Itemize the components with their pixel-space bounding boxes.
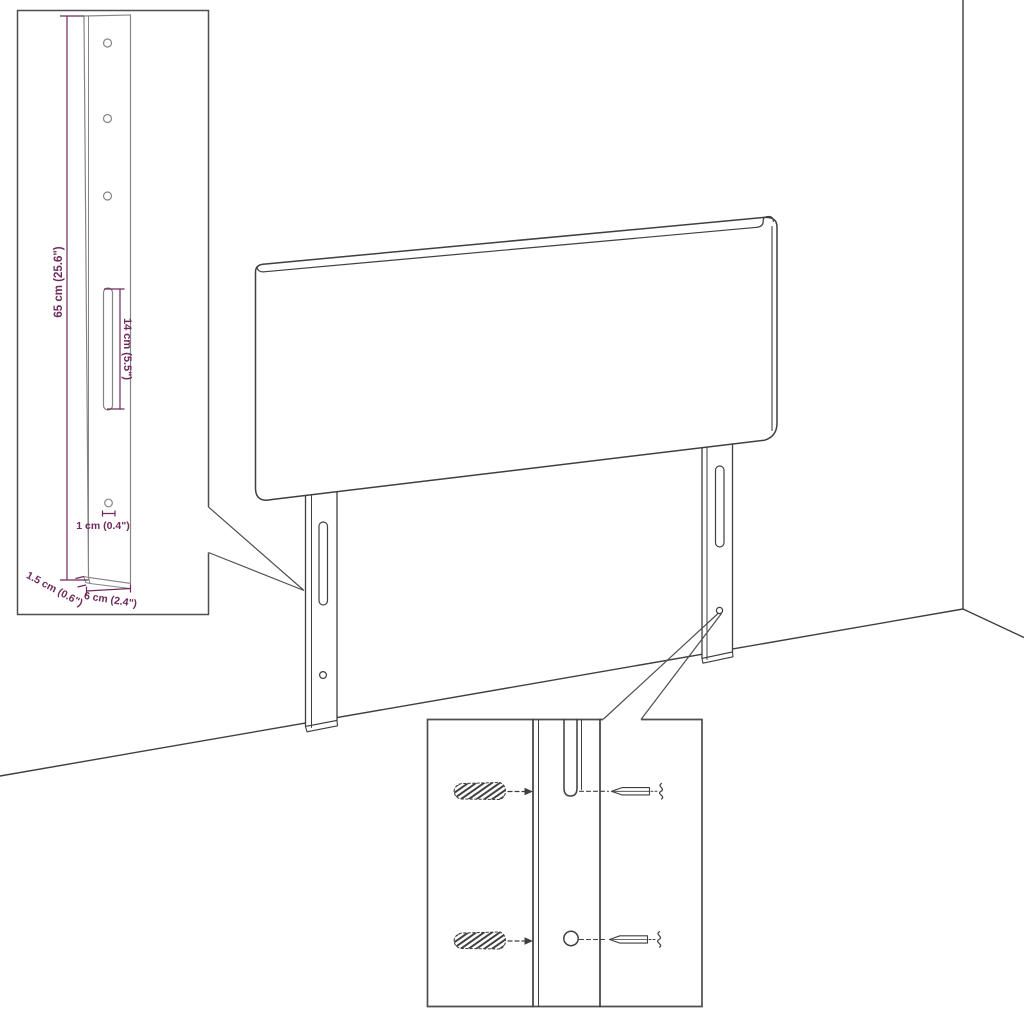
height-dimension-label: 65 cm (25.6") — [53, 246, 65, 317]
headboard-right-leg — [702, 417, 733, 663]
panel-face — [256, 217, 778, 500]
hole-dimension-label: 1 cm (0.4") — [76, 520, 129, 532]
wall-anchor-icon — [454, 783, 506, 800]
headboard-left-leg — [306, 467, 338, 732]
diagram-canvas: 65 cm (25.6") 14 cm (5.5") 1 cm (0.4") 1… — [0, 0, 1024, 1024]
bracket-callout-lines — [209, 507, 305, 591]
bracket-face — [84, 15, 131, 584]
headboard-panel — [256, 217, 778, 501]
hardware-detail-inset — [428, 614, 722, 1007]
floor-line-right — [963, 609, 1024, 638]
left-leg-body — [306, 467, 338, 727]
bracket-drawing — [84, 15, 131, 589]
wall-anchor-icon — [454, 932, 506, 949]
slot-dimension-label: 14 cm (5.5") — [121, 318, 133, 380]
strip-hole-detail — [564, 931, 578, 945]
product-dimension-diagram: 65 cm (25.6") 14 cm (5.5") 1 cm (0.4") 1… — [0, 0, 1024, 1024]
